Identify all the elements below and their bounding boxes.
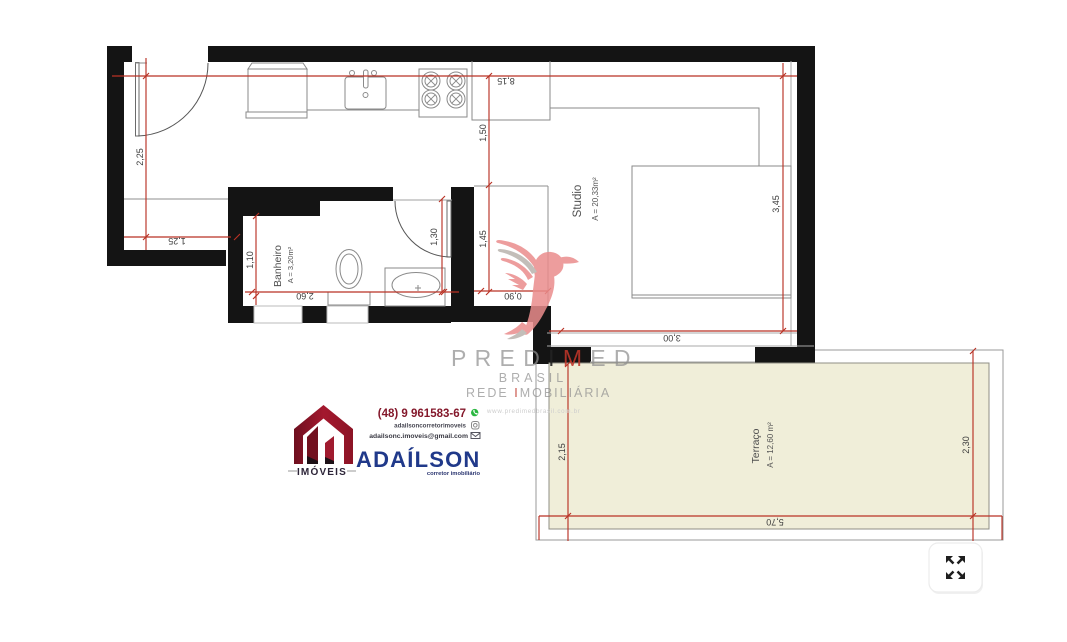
svg-text:3,45: 3,45: [771, 195, 781, 213]
svg-text:8,15: 8,15: [497, 76, 515, 86]
svg-text:5,70: 5,70: [766, 517, 784, 527]
svg-text:Studio: Studio: [572, 185, 584, 218]
svg-text:IMÓVEIS: IMÓVEIS: [297, 465, 347, 478]
svg-text:2,15: 2,15: [557, 443, 567, 461]
svg-text:REDE IMOBILIÁRIA: REDE IMOBILIÁRIA: [466, 385, 611, 400]
svg-text:1,30: 1,30: [429, 228, 439, 246]
svg-text:2,30: 2,30: [961, 436, 971, 454]
svg-text:Banheiro: Banheiro: [272, 245, 284, 287]
svg-text:(48) 9 961583-67: (48) 9 961583-67: [378, 408, 466, 420]
svg-text:ADAÍLSON: ADAÍLSON: [356, 447, 481, 472]
svg-text:Terraço: Terraço: [750, 428, 762, 463]
svg-text:adailsoncorretorimoveis: adailsoncorretorimoveis: [394, 423, 466, 430]
svg-text:A = 3,20m²: A = 3,20m²: [286, 246, 295, 283]
svg-text:BRASIL: BRASIL: [499, 371, 567, 385]
svg-text:0,90: 0,90: [504, 291, 522, 301]
svg-text:1,50: 1,50: [478, 124, 488, 142]
svg-text:PREDIMED: PREDIMED: [451, 345, 639, 371]
svg-text:1,45: 1,45: [478, 230, 488, 248]
svg-text:corretor imobiliário: corretor imobiliário: [427, 471, 481, 477]
svg-text:1,10: 1,10: [245, 251, 255, 269]
svg-text:A = 12,60 m²: A = 12,60 m²: [766, 422, 775, 468]
svg-text:2,25: 2,25: [135, 148, 145, 166]
svg-text:1,25: 1,25: [168, 236, 186, 246]
svg-text:adailsonc.imoveis@gmail.com: adailsonc.imoveis@gmail.com: [369, 433, 468, 440]
svg-text:2,60: 2,60: [296, 291, 314, 301]
svg-text:A = 20,33m²: A = 20,33m²: [591, 177, 600, 221]
svg-text:www.predimedbrasil.com.br: www.predimedbrasil.com.br: [486, 408, 581, 415]
svg-text:3,00: 3,00: [663, 333, 681, 343]
